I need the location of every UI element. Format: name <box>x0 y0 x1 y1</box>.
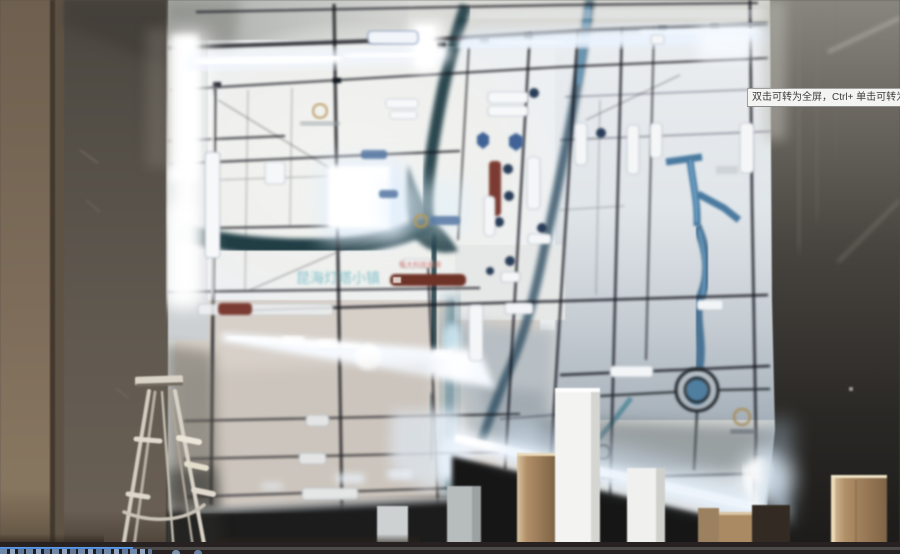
svg-text:恒大科技旅游: 恒大科技旅游 <box>399 260 441 269</box>
svg-text:昆海灯塔小镇: 昆海灯塔小镇 <box>296 270 380 286</box>
